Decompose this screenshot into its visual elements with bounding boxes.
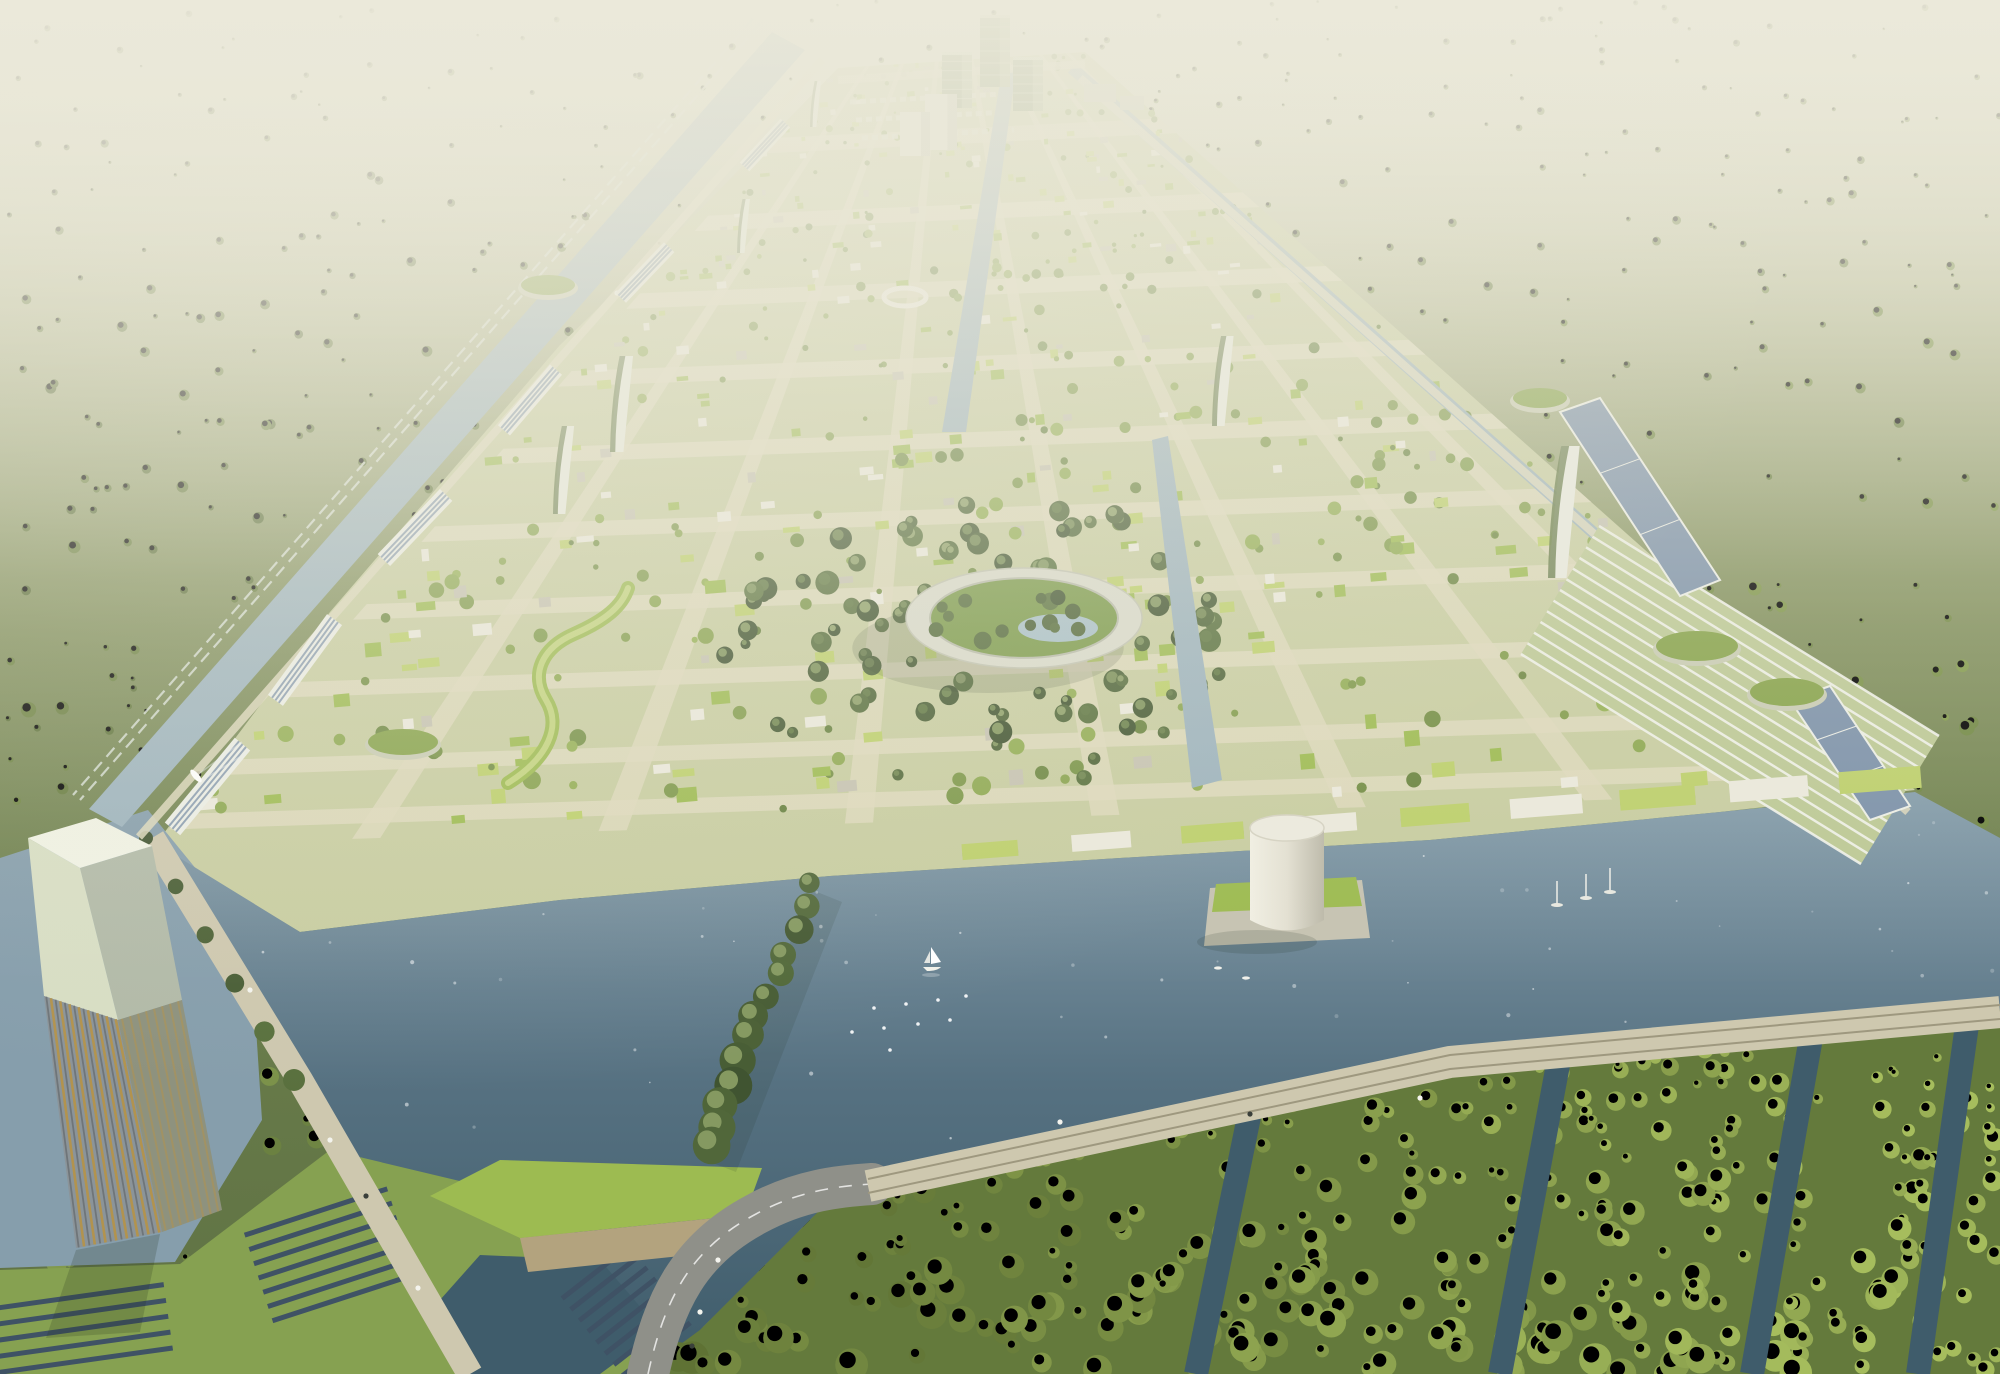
corner-light-glow [0,0,2000,1374]
smart-forest-city-aerial-render [0,0,2000,1374]
